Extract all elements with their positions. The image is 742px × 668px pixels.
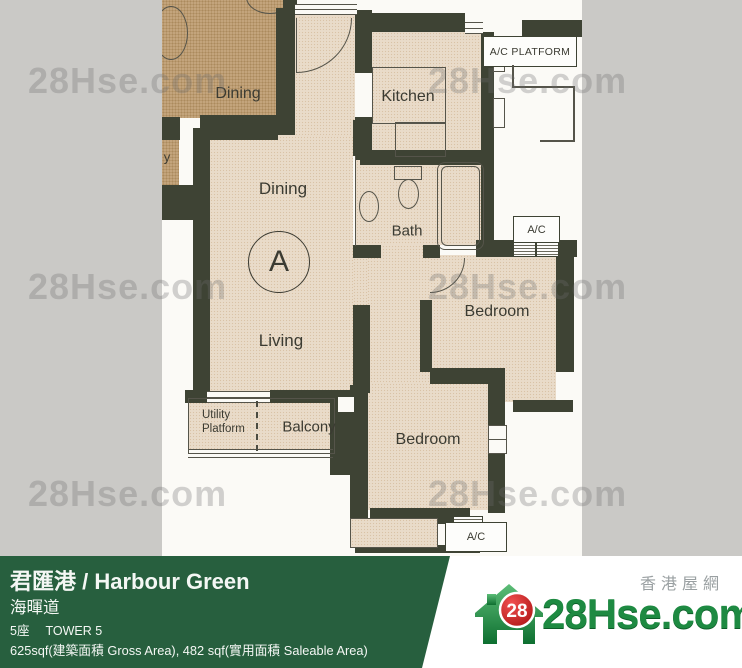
ac-upper-box: A/C <box>513 216 560 243</box>
tower-en: TOWER 5 <box>45 624 102 638</box>
floorplan-page: A/C A/C A/C PLATFORM A Dining y Dining L… <box>0 0 742 668</box>
wall <box>420 300 432 372</box>
kitchen-counter <box>395 122 446 157</box>
bathtub-inner <box>441 166 480 246</box>
utility-line2: Platform <box>202 422 245 436</box>
dining-label: Dining <box>259 179 307 199</box>
bedroom-window <box>488 439 507 454</box>
wall <box>522 20 582 37</box>
tower-zh: 5座 <box>10 624 29 638</box>
neighbor-cutoff-label: y <box>164 150 171 165</box>
utility-divider <box>256 401 258 451</box>
ac-louver <box>536 242 559 257</box>
watermark: 28Hse.com <box>428 60 627 102</box>
estate-title: 君匯港 / Harbour Green <box>10 564 250 596</box>
watermark: 28Hse.com <box>428 266 627 308</box>
wall <box>162 185 193 220</box>
utility-platform-label: Utility Platform <box>202 408 245 436</box>
bath-partition <box>355 156 356 246</box>
brand-name: 28Hse.com <box>542 590 742 638</box>
bedroom-bottom-label: Bedroom <box>396 431 461 449</box>
wall <box>200 115 278 140</box>
balcony-railing <box>188 449 333 458</box>
bedroom-window <box>488 425 507 440</box>
ac-lower-box: A/C <box>445 522 507 552</box>
estate-address: 海暉道 <box>10 594 60 618</box>
bedroom-right-jut-fill <box>505 372 556 402</box>
kitchen-top-window <box>465 22 483 34</box>
footer-banner: 君匯港 / Harbour Green 海暉道 5座TOWER 5 625sqf… <box>0 556 480 668</box>
ac-lower-label: A/C <box>467 531 485 543</box>
bay-outline <box>350 518 438 548</box>
wall <box>430 368 505 384</box>
house-logo-icon: 28 <box>473 582 545 653</box>
ac-platform-step <box>540 140 575 142</box>
bath-label: Bath <box>392 223 423 240</box>
ac-upper-label: A/C <box>527 224 545 236</box>
kitchen-side-window <box>493 98 505 128</box>
balcony-notch <box>338 397 354 412</box>
wall <box>162 117 180 140</box>
kitchen-label: Kitchen <box>381 88 434 106</box>
area-line: 625sqf(建築面積 Gross Area), 482 sqf(實用面積 Sa… <box>10 640 368 659</box>
wall <box>353 305 370 393</box>
sink-icon <box>359 191 379 222</box>
unit-marker-circle: A <box>248 231 310 293</box>
wall <box>370 13 465 32</box>
wall <box>353 120 367 156</box>
balcony-label: Balcony <box>282 419 335 436</box>
site-brand: 香港屋網 28 28Hse. <box>470 556 742 668</box>
watermark: 28Hse.com <box>28 266 227 308</box>
toilet-bowl-icon <box>398 179 419 209</box>
unit-marker-label: A <box>269 245 289 279</box>
ac-louver <box>513 242 536 257</box>
watermark: 28Hse.com <box>28 60 227 102</box>
toilet-tank-icon <box>394 166 422 180</box>
wall <box>423 245 440 258</box>
wall <box>276 8 295 122</box>
brand-badge: 28 <box>506 601 527 622</box>
utility-line1: Utility <box>202 408 245 422</box>
tower-line: 5座TOWER 5 <box>10 620 102 639</box>
entry-threshold <box>295 4 357 15</box>
watermark: 28Hse.com <box>428 473 627 515</box>
wall <box>353 245 381 258</box>
wall <box>193 128 210 393</box>
wall <box>513 400 573 412</box>
living-label: Living <box>259 331 303 351</box>
ac-platform-label: A/C PLATFORM <box>490 46 570 58</box>
watermark: 28Hse.com <box>28 473 227 515</box>
